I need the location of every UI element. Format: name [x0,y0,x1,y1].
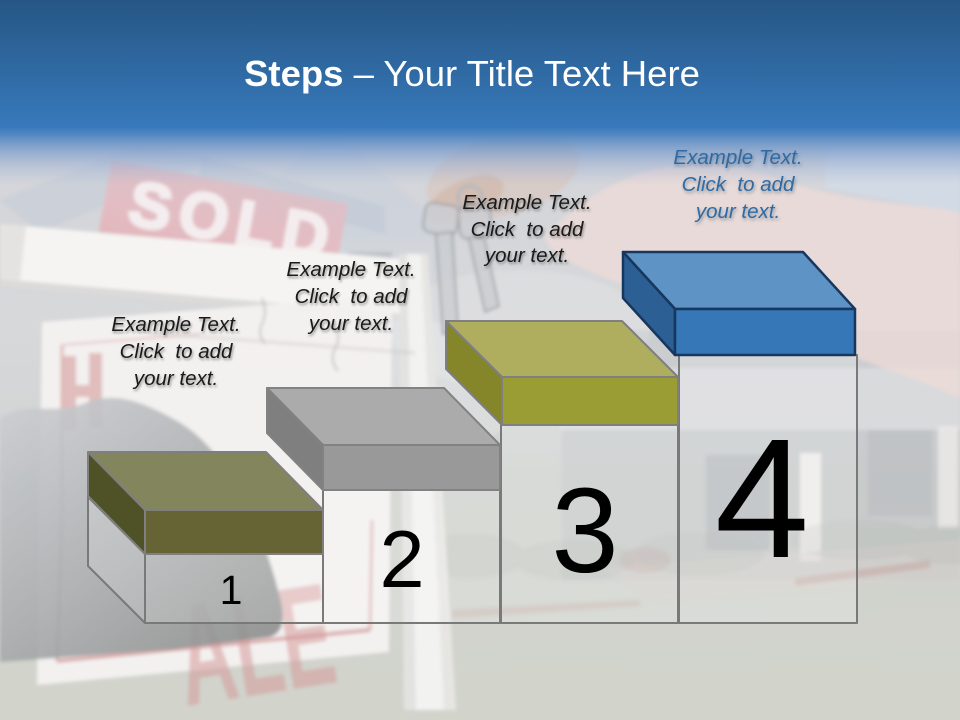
svg-text:2: 2 [379,515,424,605]
svg-text:your text.: your text. [483,244,569,267]
svg-text:your text.: your text. [307,312,393,335]
svg-text:Click to add: Click to add [682,173,795,196]
svg-text:4: 4 [715,404,810,594]
svg-text:3: 3 [551,462,618,598]
svg-text:Example Text.: Example Text. [286,258,415,281]
svg-text:Click to add: Click to add [120,340,233,363]
svg-text:Example Text.: Example Text. [462,191,591,214]
svg-text:Example Text.: Example Text. [673,146,802,169]
svg-text:1: 1 [220,567,243,613]
svg-text:your text.: your text. [132,367,218,390]
svg-text:Example Text.: Example Text. [111,313,240,336]
svg-text:Steps – Your Title Text Here: Steps – Your Title Text Here [244,53,700,94]
svg-text:Click to add: Click to add [471,218,584,241]
svg-text:your text.: your text. [694,200,780,223]
svg-text:Click to add: Click to add [295,285,408,308]
